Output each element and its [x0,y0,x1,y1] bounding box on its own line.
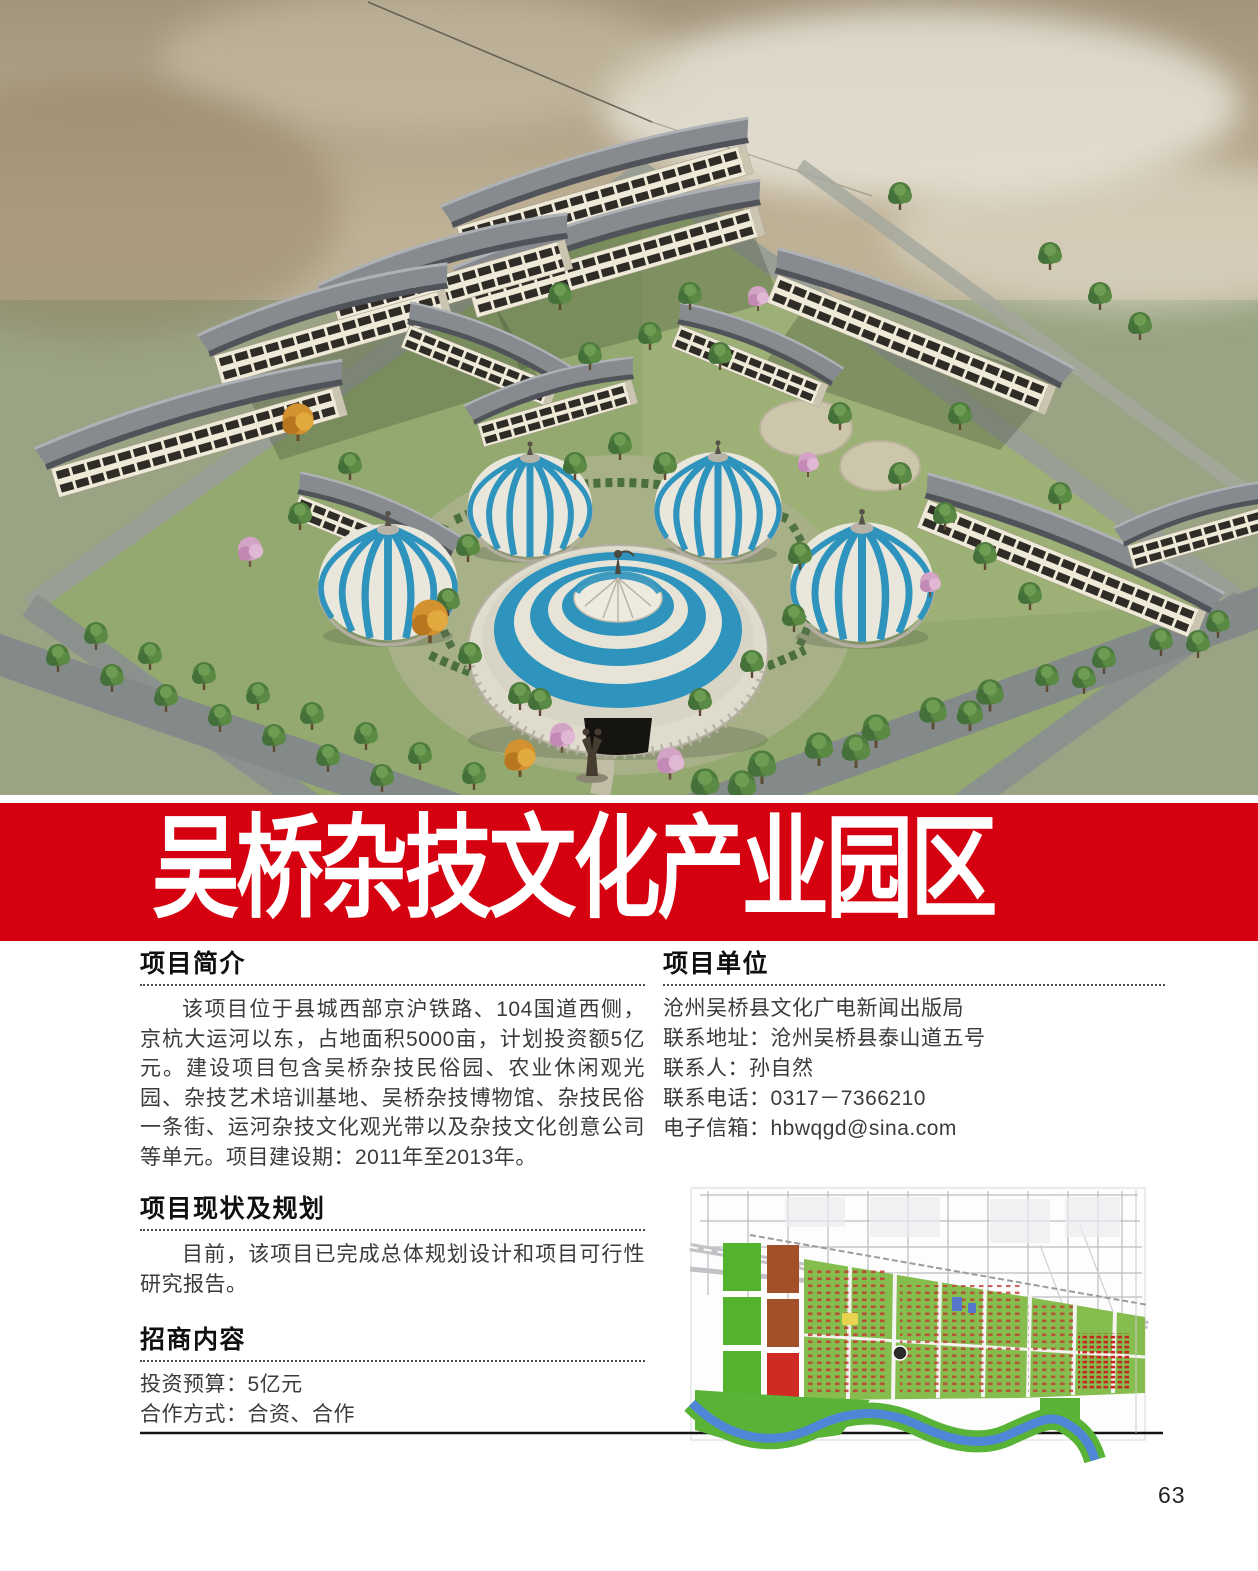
dotted-divider [140,1360,645,1362]
section-status: 项目现状及规划 目前，该项目已完成总体规划设计和项目可行性研究报告。 [140,1194,645,1299]
section-intro: 项目简介 该项目位于县城西部京沪铁路、104国道西侧，京杭大运河以东，占地面积5… [140,949,645,1172]
section-investment: 招商内容 投资预算：5亿元 合作方式：合资、合作 [140,1325,645,1430]
investment-line: 合作方式：合资、合作 [140,1400,645,1430]
land-parcels [723,1243,799,1399]
contact-person: 联系人：孙自然 [663,1054,1165,1084]
circus-landmark [893,1346,907,1360]
contact-email: 电子信箱：hbwqgd@sina.com [663,1114,1165,1144]
circus-dome-large [468,545,768,760]
dotted-divider [140,1229,645,1231]
unit-name: 沧州吴桥县文化广电新闻出版局 [663,994,1165,1024]
intro-body: 该项目位于县城西部京沪铁路、104国道西侧，京杭大运河以东，占地面积5000亩，… [140,995,645,1172]
section-heading: 项目现状及规划 [140,1194,645,1224]
section-unit: 项目单位 沧州吴桥县文化广电新闻出版局 联系地址：沧州吴桥县泰山道五号 联系人：… [663,949,1165,1144]
section-heading: 项目单位 [663,949,1165,979]
hero-aerial-rendering [0,0,1258,795]
red-roof-quarter [1078,1333,1130,1389]
investment-line: 投资预算：5亿元 [140,1370,645,1400]
dotted-divider [140,984,645,986]
yellow-parcel [842,1313,858,1325]
status-body: 目前，该项目已完成总体规划设计和项目可行性研究报告。 [140,1240,645,1299]
contact-phone: 联系电话：0317－7366210 [663,1084,1165,1114]
title-banner: 吴桥杂技文化产业园区 [0,803,1258,941]
page-number: 63 [1158,1482,1206,1509]
section-heading: 项目简介 [140,949,645,979]
section-heading: 招商内容 [140,1325,645,1355]
contact-address: 联系地址：沧州吴桥县泰山道五号 [663,1024,1165,1054]
planning-map [690,1185,1148,1457]
dotted-divider [663,984,1165,986]
brochure-page: 吴桥杂技文化产业园区 项目简介 该项目位于县城西部京沪铁路、104国道西侧，京杭… [0,0,1258,1571]
page-title: 吴桥杂技文化产业园区 [152,803,994,941]
